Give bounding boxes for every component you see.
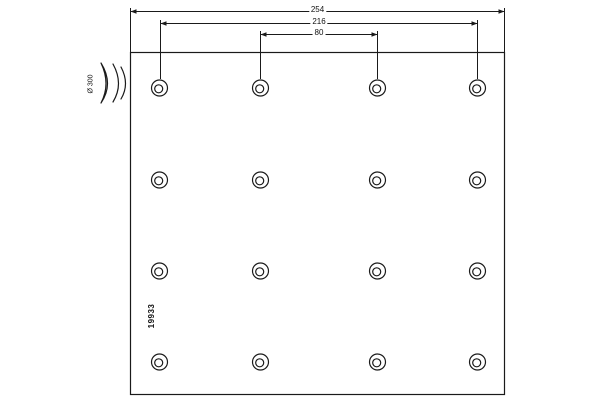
rivet-hole-outer — [470, 172, 486, 188]
rivet-hole-inner — [256, 268, 264, 276]
rivet-hole-outer — [152, 354, 168, 370]
curvature-arc — [121, 67, 126, 99]
arrowhead-right — [372, 32, 378, 36]
drawing-svg — [0, 0, 600, 400]
arrowhead-left — [161, 21, 167, 25]
rivet-hole-outer — [370, 80, 386, 96]
rivet-hole-inner — [256, 359, 264, 367]
rivet-hole-inner — [155, 359, 163, 367]
rivet-hole-outer — [253, 354, 269, 370]
rivet-hole-inner — [155, 177, 163, 185]
arrowhead-left — [261, 32, 267, 36]
rivet-hole-inner — [256, 177, 264, 185]
technical-drawing-page: 254 216 80 Ø 300 19933 — [0, 0, 600, 400]
rivet-hole-outer — [370, 354, 386, 370]
rivet-hole-inner — [373, 359, 381, 367]
rivet-hole-inner — [155, 268, 163, 276]
rivet-hole-outer — [253, 80, 269, 96]
rivet-hole-inner — [473, 177, 481, 185]
rivet-hole-outer — [253, 263, 269, 279]
arrowhead-left — [131, 9, 137, 13]
rivet-hole-inner — [256, 85, 264, 93]
rivet-hole-inner — [473, 268, 481, 276]
rivet-hole-inner — [373, 177, 381, 185]
arrowhead-right — [472, 21, 478, 25]
dim-outer-holes-label: 216 — [310, 18, 327, 26]
rivet-hole-inner — [373, 268, 381, 276]
drum-diameter-label: Ø 300 — [88, 73, 95, 94]
curvature-arc — [113, 64, 119, 102]
rivet-hole-outer — [370, 172, 386, 188]
rivet-hole-outer — [152, 172, 168, 188]
rivet-hole-outer — [253, 172, 269, 188]
curvature-crescent — [101, 63, 108, 103]
lining-plate-outline — [131, 53, 505, 395]
dim-inner-holes-label: 80 — [313, 29, 326, 37]
rivet-hole-outer — [152, 80, 168, 96]
rivet-hole-outer — [470, 354, 486, 370]
rivet-hole-inner — [373, 85, 381, 93]
rivet-hole-outer — [152, 263, 168, 279]
rivet-hole-outer — [470, 263, 486, 279]
dim-total-label: 254 — [309, 6, 326, 14]
arrowhead-right — [499, 9, 505, 13]
rivet-hole-outer — [470, 80, 486, 96]
rivet-hole-outer — [370, 263, 386, 279]
rivet-hole-inner — [473, 85, 481, 93]
part-number-label: 19933 — [148, 303, 156, 330]
rivet-hole-inner — [155, 85, 163, 93]
rivet-hole-inner — [473, 359, 481, 367]
